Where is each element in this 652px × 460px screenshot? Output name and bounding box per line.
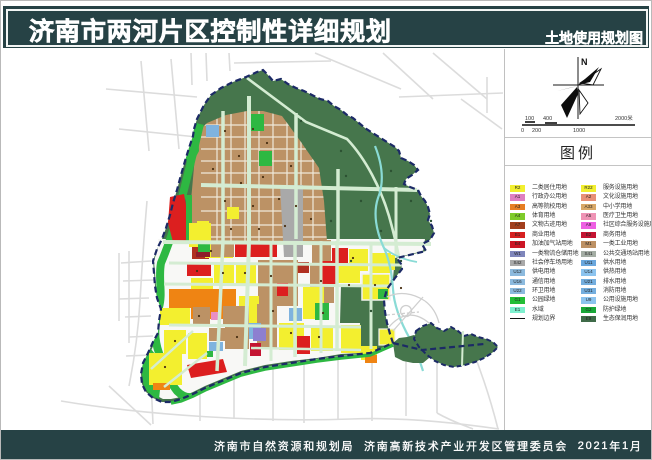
- svg-text:100: 100: [525, 116, 534, 122]
- svg-text:N: N: [581, 57, 588, 67]
- svg-text:0: 0: [521, 128, 524, 134]
- svg-text:1000: 1000: [573, 128, 585, 134]
- svg-text:400: 400: [543, 116, 552, 122]
- svg-text:2000米: 2000米: [615, 114, 633, 122]
- svg-text:200: 200: [532, 128, 541, 134]
